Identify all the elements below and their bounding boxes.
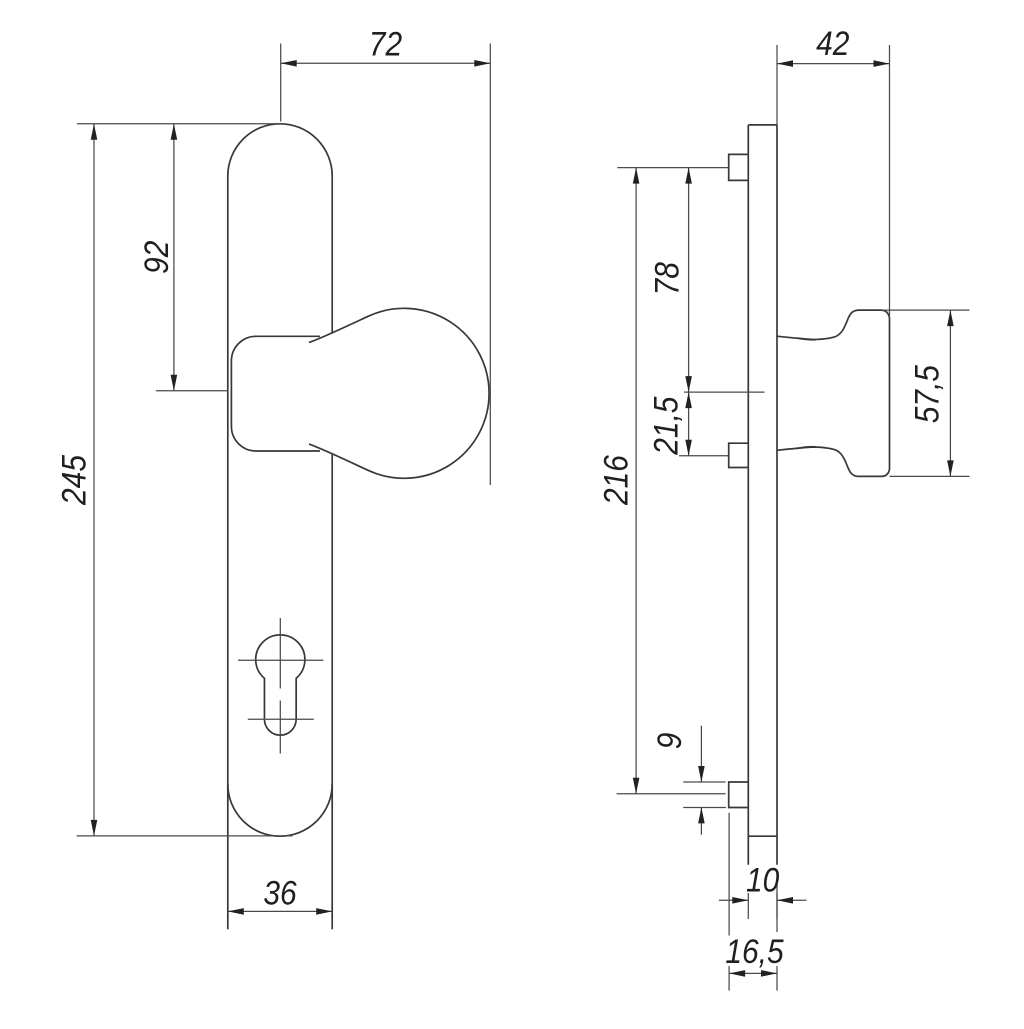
svg-text:21,5: 21,5 <box>647 396 685 455</box>
svg-text:57,5: 57,5 <box>908 365 946 423</box>
svg-text:36: 36 <box>263 874 296 912</box>
svg-text:10: 10 <box>746 861 779 899</box>
svg-text:92: 92 <box>137 240 175 273</box>
svg-text:16,5: 16,5 <box>725 932 783 970</box>
svg-text:245: 245 <box>55 455 93 506</box>
svg-text:78: 78 <box>648 262 686 295</box>
svg-text:72: 72 <box>369 25 402 63</box>
svg-text:9: 9 <box>650 732 688 749</box>
svg-text:216: 216 <box>597 455 635 506</box>
svg-text:42: 42 <box>816 24 849 62</box>
